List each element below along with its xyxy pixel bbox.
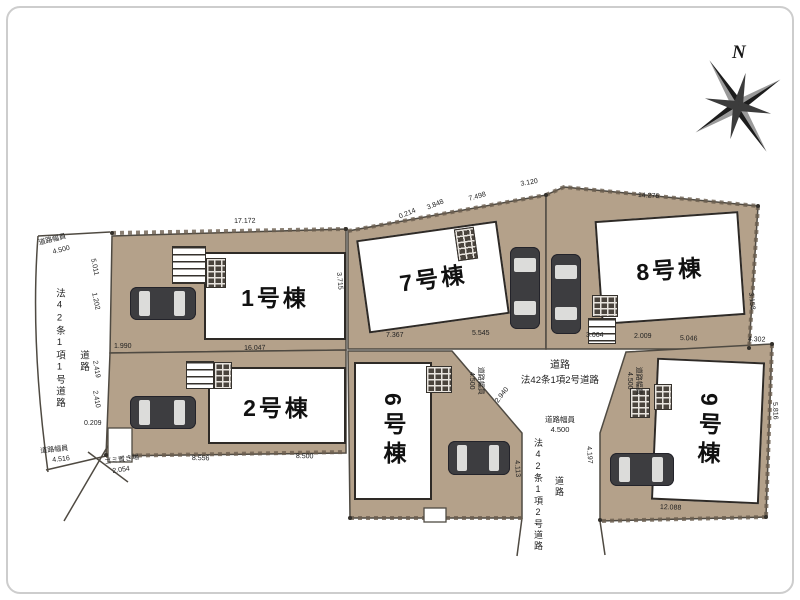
dimension-label: 4.197 [585,446,593,464]
entrance-steps [588,318,616,344]
dimension-label: 1.990 [114,343,132,350]
dimension-label: 3.715 [335,272,344,290]
car-icon [551,254,581,334]
dimension-label: 3.064 [586,332,604,339]
site-plan-canvas: 1号棟 2号棟 7号棟 8号棟 6号棟 9号棟 法42条1項1号道路 道路 道路… [0,0,800,600]
road-center-width-label: 道路幅員 [545,415,575,424]
entrance-steps [206,258,226,288]
dimension-label: 5.816 [771,402,779,420]
building-9-label: 9号棟 [689,392,726,470]
building-6: 6号棟 [354,362,432,500]
building-8-label: 8号棟 [635,249,705,288]
dimension-label: 0.209 [84,420,102,427]
car-icon [130,396,196,429]
building-1-label: 1号棟 [241,279,309,313]
dimension-label: 8.500 [296,453,314,460]
car-icon [130,287,196,320]
road-left-type-label: 法42条1項1号道路 [52,288,66,438]
building-7-label: 7号棟 [397,255,469,298]
road-stub-width-right: 道路幅員4.500 [624,354,642,408]
building-6-label: 6号棟 [376,393,410,470]
entrance-steps [214,362,232,389]
dimension-label: 8.556 [192,455,210,462]
car-icon [610,453,674,486]
dimension-label: 5.545 [472,330,490,337]
road-stub-width-left: 道路幅員4.500 [466,354,484,408]
dimension-label: 14.276 [638,192,660,200]
dimension-label: 2.009 [634,333,652,340]
dimension-label: 12.088 [660,504,682,512]
building-2-label: 2号棟 [243,389,311,423]
building-7: 7号棟 [356,221,510,334]
car-icon [448,441,510,475]
road-center-name-label: 道路 [505,356,615,371]
dimension-label: 16.047 [244,345,266,352]
road-left-name-label: 道路 [76,350,90,410]
compass-north-label: N [732,42,746,64]
car-icon [510,247,540,329]
road-bottom-type-label: 法42条1項2号道路 [532,438,545,570]
entrance-steps [186,361,214,389]
road-center-width-value: 4.500 [551,425,570,434]
entrance-steps [592,295,618,317]
road-bottom-name-label: 道路 [553,476,566,526]
dimension-label: 7.367 [386,332,404,339]
entrance-steps [454,227,478,261]
dimension-label: 5.046 [680,335,698,343]
entrance-steps [172,246,206,284]
dimension-label: 4.302 [748,336,766,344]
dimension-label: 17.172 [234,218,256,225]
entrance-steps [654,384,672,410]
entrance-steps [426,366,452,393]
road-center-type-label: 法42条1項2号道路 [478,372,642,386]
dimension-label: 4.113 [513,460,521,477]
